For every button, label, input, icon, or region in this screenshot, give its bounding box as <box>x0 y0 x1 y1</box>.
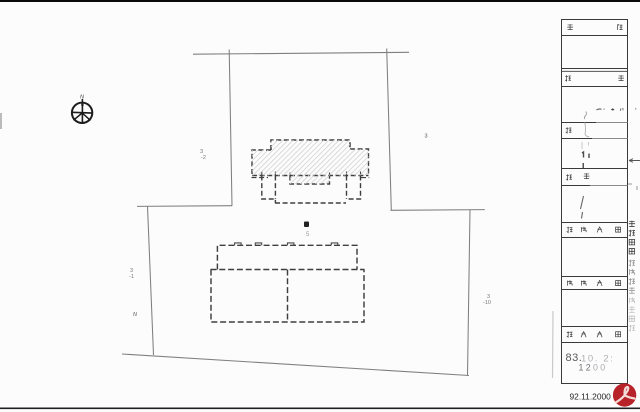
svg-text:-2: -2 <box>201 155 206 161</box>
svg-text:00: 00 <box>593 363 608 373</box>
svg-text:N: N <box>133 312 137 318</box>
svg-text:-1: -1 <box>129 274 134 280</box>
svg-text:-10: -10 <box>483 300 491 306</box>
svg-text:92.11.2000: 92.11.2000 <box>570 391 612 401</box>
svg-text:5: 5 <box>306 232 310 238</box>
svg-text:3: 3 <box>425 134 428 140</box>
svg-text:12: 12 <box>579 363 594 373</box>
svg-text:N: N <box>80 95 84 101</box>
